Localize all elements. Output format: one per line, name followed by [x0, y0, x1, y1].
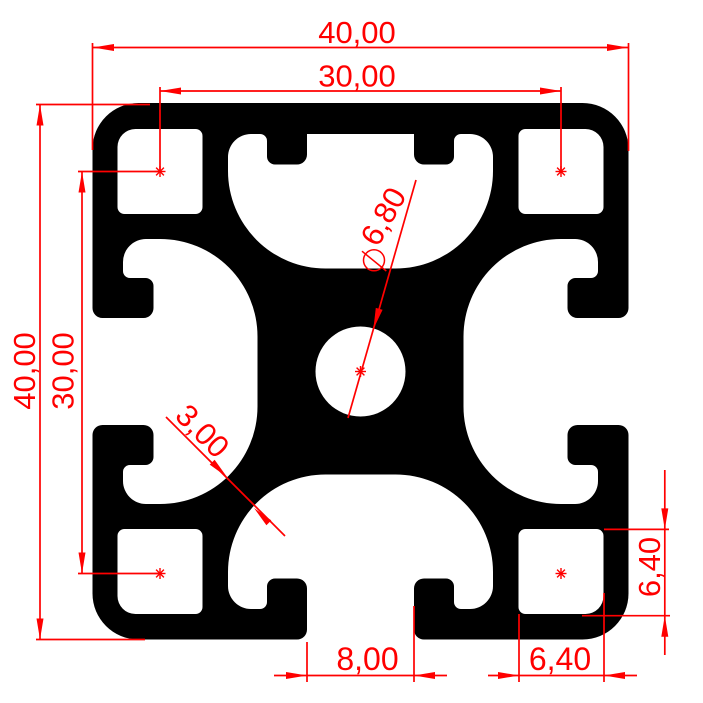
svg-text:40,00: 40,00	[318, 15, 396, 50]
svg-text:6,40: 6,40	[529, 641, 591, 677]
svg-text:40,00: 40,00	[7, 332, 42, 410]
svg-text:6,40: 6,40	[632, 537, 667, 597]
svg-text:30,00: 30,00	[46, 332, 81, 410]
svg-text:8,00: 8,00	[336, 641, 398, 677]
svg-text:30,00: 30,00	[318, 59, 396, 94]
